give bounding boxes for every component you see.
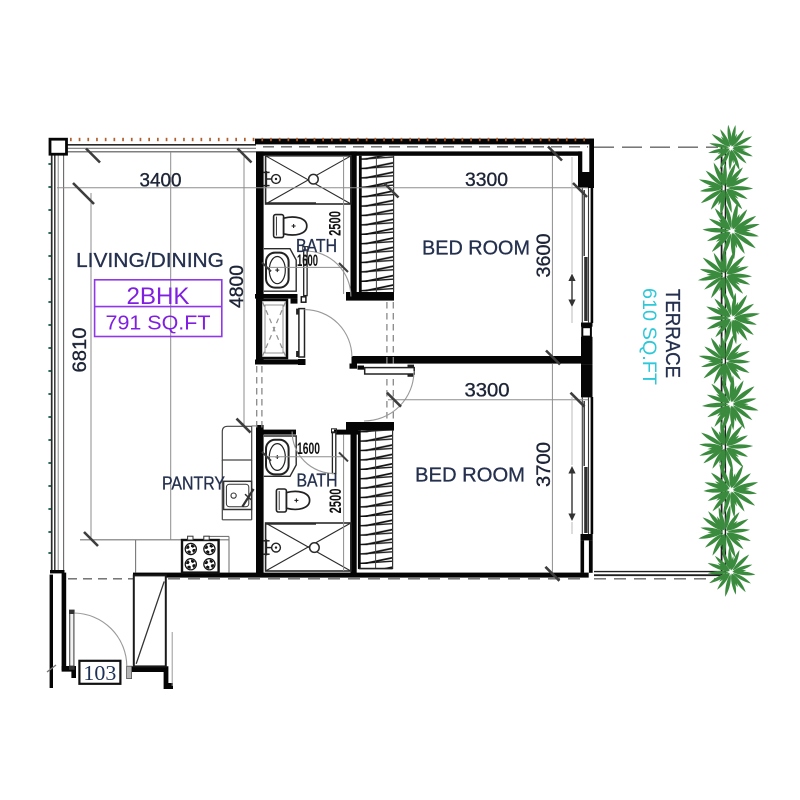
svg-text:LIVING/DINING: LIVING/DINING [76, 249, 224, 272]
svg-text:BATH: BATH [296, 236, 337, 256]
svg-text:791 SQ.FT: 791 SQ.FT [106, 313, 211, 335]
svg-text:2BHK: 2BHK [127, 283, 191, 310]
svg-text:BED ROOM: BED ROOM [415, 464, 525, 487]
svg-text:610 SQ.FT: 610 SQ.FT [638, 288, 660, 385]
svg-text:BED ROOM: BED ROOM [422, 237, 530, 260]
svg-text:3600: 3600 [534, 234, 555, 278]
svg-text:1600: 1600 [297, 438, 320, 457]
svg-text:3700: 3700 [534, 442, 555, 487]
svg-text:PANTRY: PANTRY [162, 474, 225, 494]
svg-text:2500: 2500 [325, 488, 344, 513]
svg-text:2500: 2500 [325, 211, 344, 236]
svg-text:TERRACE: TERRACE [661, 289, 683, 378]
svg-text:6810: 6810 [70, 328, 91, 373]
svg-text:BATH: BATH [297, 471, 338, 491]
svg-text:103: 103 [83, 661, 116, 685]
svg-text:3300: 3300 [465, 170, 508, 191]
svg-text:3400: 3400 [140, 171, 182, 192]
svg-text:4800: 4800 [227, 265, 248, 308]
svg-text:3300: 3300 [465, 381, 510, 402]
